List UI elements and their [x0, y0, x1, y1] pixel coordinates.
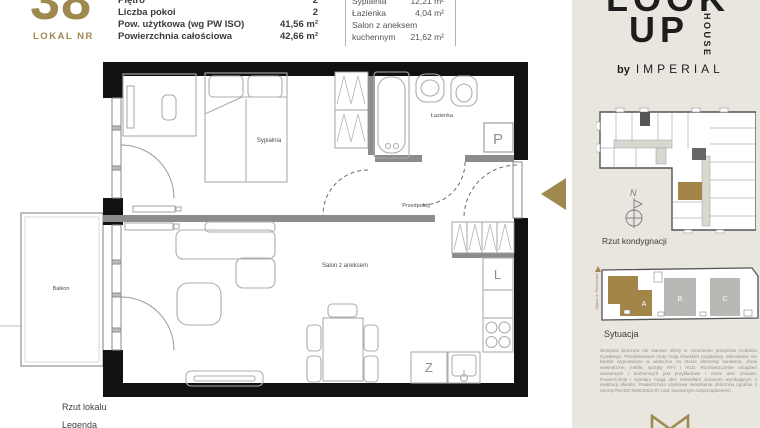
- spec-value: 2: [313, 0, 318, 7]
- spec-label: Pow. użytkowa (wg PW ISO): [118, 19, 244, 31]
- spec-label: Piętro: [118, 0, 145, 7]
- radiator: [133, 206, 175, 212]
- dining-chair: [328, 304, 357, 317]
- spec-row-floor: Piętro 2: [118, 0, 318, 7]
- chair: [162, 95, 176, 120]
- spec-label: Liczba pokoi: [118, 7, 176, 19]
- label-living: Salon z aneksem: [322, 263, 368, 269]
- building-c-label: C: [722, 296, 727, 303]
- legend-caption: Legenda: [62, 420, 97, 428]
- label-hall: Przedpokój: [402, 203, 430, 209]
- label-bathroom: Łazienka: [431, 113, 454, 119]
- window-swings: [121, 145, 174, 350]
- plan-caption: Rzut lokalu: [62, 402, 107, 412]
- dining-chair: [307, 356, 321, 382]
- bathroom-fixtures: [374, 72, 477, 158]
- room-row-living-2: kuchennym 21,62 m²: [352, 31, 444, 43]
- dining-table: [323, 318, 363, 381]
- logo-up: UP: [629, 12, 689, 48]
- side-panel: LOOK UP HOUSE by IMPERIAL: [572, 0, 760, 428]
- bathtub-inner: [378, 77, 405, 153]
- entry-arrow-icon: [595, 266, 601, 272]
- built-in-wardrobe-nook: [335, 72, 368, 148]
- door-swings: [323, 162, 517, 218]
- room-row-bedroom: Sypialnia 12,21 m²: [352, 0, 444, 7]
- street-label: Wjazd ul. Piecewska: [594, 273, 599, 310]
- header-divider-1: [345, 0, 346, 46]
- bedroom-window-swing: [121, 145, 174, 198]
- storey-map-caption: Rzut kondygnacji: [602, 236, 667, 246]
- logo-by: by: [617, 64, 630, 76]
- entrance-door-swing: [464, 165, 517, 218]
- room-label: Łazienka: [352, 7, 386, 19]
- dishwasher-letter: Z: [425, 360, 433, 375]
- dining-chair: [364, 356, 378, 382]
- sofa-chaise: [236, 258, 275, 288]
- sofa-seat: [176, 230, 275, 259]
- coffee-table: [177, 283, 221, 325]
- hall-wardrobe: [452, 222, 514, 253]
- wardrobe-nook-door-swing: [323, 170, 368, 215]
- balcony-door-swing: [121, 297, 174, 350]
- shaft-letter: P: [493, 131, 503, 148]
- spec-row-total-area: Powierzchnia całościowa 42,66 m²: [118, 31, 318, 43]
- unit-number: 38: [30, 0, 92, 28]
- dining-chair: [364, 325, 378, 351]
- logo-byline: by IMPERIAL: [617, 62, 724, 76]
- room-label: Sypialnia: [352, 0, 387, 7]
- shaft: P: [484, 123, 513, 152]
- bedroom-window: [112, 98, 121, 198]
- kitchen-cabinet: [483, 290, 513, 318]
- entrance-arrow-icon: [541, 178, 566, 210]
- logo-brand: IMPERIAL: [636, 62, 724, 76]
- room-value: 21,62 m²: [410, 31, 444, 43]
- fridge-letter: L: [494, 267, 501, 282]
- building-b-label: B: [678, 296, 683, 303]
- pillow: [209, 76, 243, 97]
- spec-value: 41,56 m²: [280, 19, 318, 31]
- unit-number-label: LOKAL NR: [33, 31, 94, 42]
- room-row-living-1: Salon z aneksem: [352, 19, 444, 31]
- disclaimer-text: Niniejsza broszura nie stanowi oferty w …: [600, 348, 757, 394]
- site-map-caption: Sytuacja: [604, 329, 639, 339]
- balcony: [0, 213, 103, 366]
- living-furniture: [125, 222, 378, 386]
- site-map: A B C Wjazd ul. Piecewska: [594, 264, 760, 326]
- room-value: 12,21 m²: [410, 0, 444, 7]
- spec-value: 42,66 m²: [280, 31, 318, 43]
- bathroom-door-swing: [422, 162, 465, 205]
- brochure-page: 38 LOKAL NR Piętro 2 Liczba pokoi 2 Pow.…: [0, 0, 760, 428]
- compass-n: N: [630, 188, 637, 198]
- spec-row-rooms-count: Liczba pokoi 2: [118, 7, 318, 19]
- logo-house: HOUSE: [702, 13, 712, 49]
- washbasin: [416, 74, 444, 102]
- storey-map: N: [596, 100, 756, 234]
- building-a-label: A: [642, 301, 647, 308]
- highlighted-unit: [678, 182, 702, 200]
- label-bedroom: Sypialnia: [257, 138, 282, 144]
- spec-value: 2: [313, 7, 318, 19]
- label-balcony: Balkon: [53, 286, 70, 292]
- compass-icon: N: [626, 188, 642, 228]
- radiator: [125, 223, 173, 230]
- header-divider-2: [455, 0, 456, 46]
- room-row-bathroom: Łazienka 4,04 m²: [352, 7, 444, 19]
- room-label: Salon z aneksem: [352, 19, 417, 31]
- room-label: kuchennym: [352, 31, 395, 43]
- spec-row-usable-area: Pow. użytkowa (wg PW ISO) 41,56 m²: [118, 19, 318, 31]
- dining-chair: [307, 325, 321, 351]
- room-value: 4,04 m²: [415, 7, 444, 19]
- wardrobe-detail: [127, 86, 134, 128]
- entrance-door-frame: [513, 162, 522, 218]
- spec-label: Powierzchnia całościowa: [118, 31, 232, 43]
- imperial-monogram-icon: [648, 414, 692, 428]
- floor-plan: P L Z: [0, 55, 572, 400]
- pillow: [248, 76, 282, 97]
